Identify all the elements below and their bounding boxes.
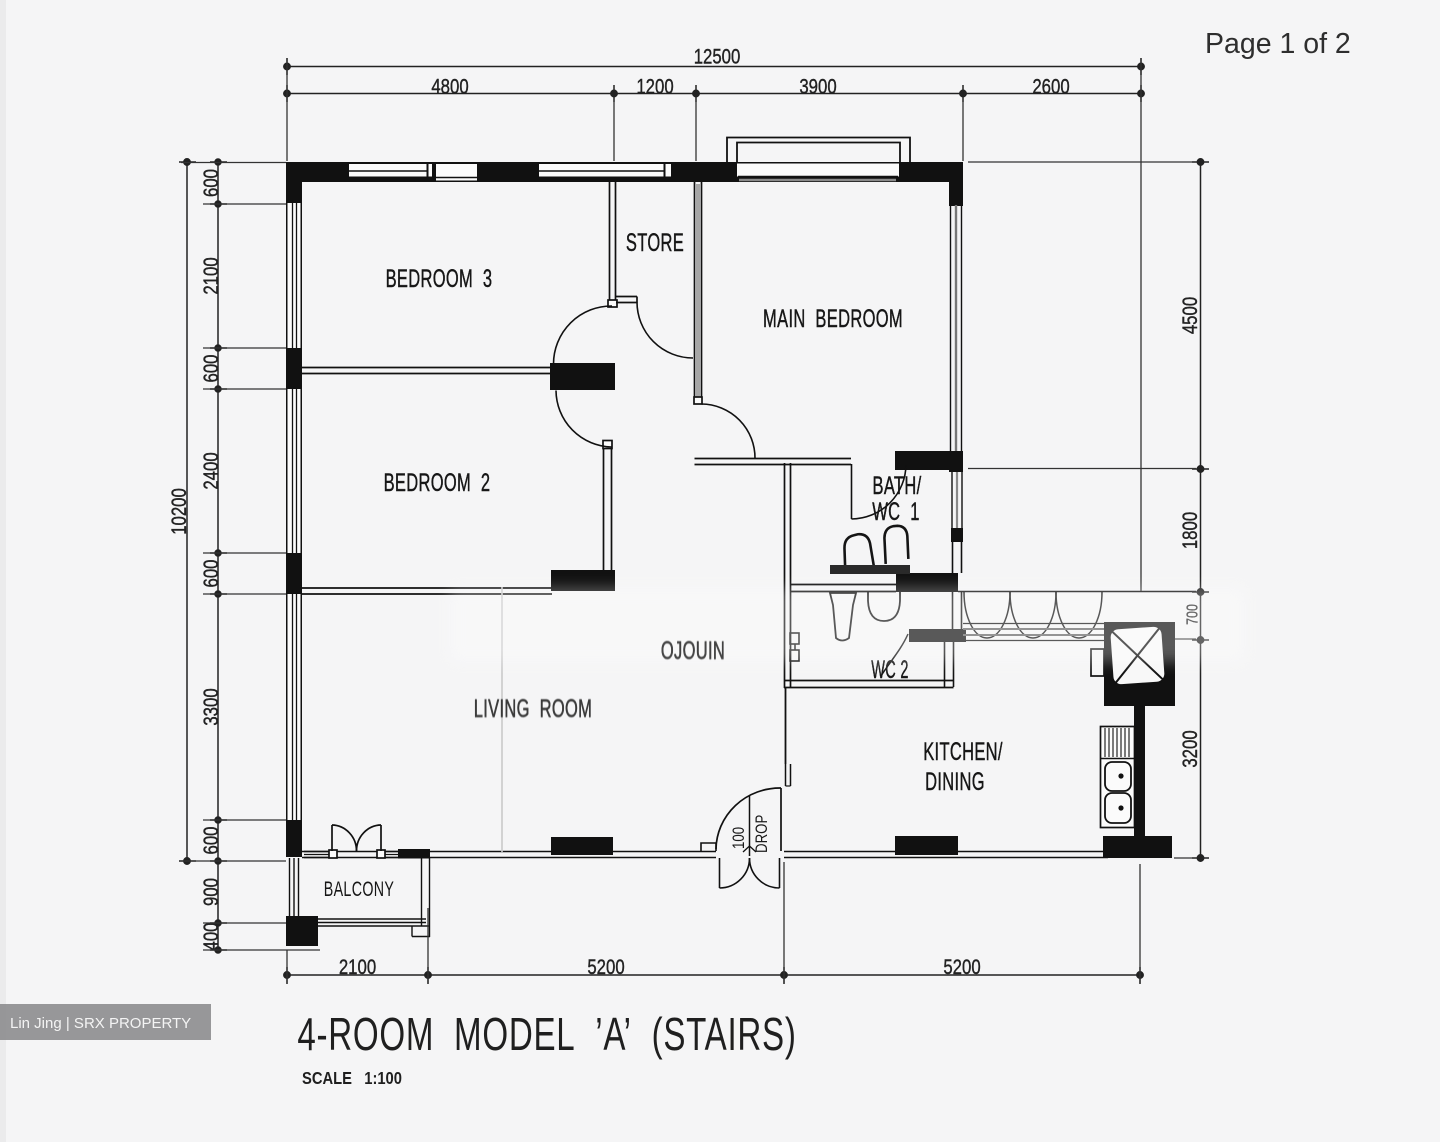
svg-text:2100: 2100 bbox=[200, 257, 223, 294]
svg-text:SCALE 1:100: SCALE 1:100 bbox=[302, 1069, 402, 1089]
svg-text:10200: 10200 bbox=[168, 488, 191, 535]
svg-text:600: 600 bbox=[200, 827, 223, 855]
svg-text:WC 1: WC 1 bbox=[872, 499, 919, 526]
svg-text:400: 400 bbox=[200, 923, 223, 951]
svg-text:2400: 2400 bbox=[200, 452, 223, 489]
svg-text:12500: 12500 bbox=[694, 46, 741, 69]
svg-text:Page 1 of 2: Page 1 of 2 bbox=[1205, 28, 1351, 60]
svg-text:3300: 3300 bbox=[200, 688, 223, 725]
svg-text:600: 600 bbox=[200, 169, 223, 197]
svg-text:2600: 2600 bbox=[1032, 76, 1069, 99]
svg-text:600: 600 bbox=[200, 355, 223, 383]
svg-text:5200: 5200 bbox=[587, 956, 624, 979]
svg-text:KITCHEN/: KITCHEN/ bbox=[923, 739, 1003, 766]
svg-text:4500: 4500 bbox=[1179, 297, 1202, 334]
svg-text:1200: 1200 bbox=[636, 76, 673, 99]
svg-text:Lin Jing | SRX PROPERTY: Lin Jing | SRX PROPERTY bbox=[10, 1015, 191, 1032]
svg-text:5200: 5200 bbox=[943, 956, 980, 979]
svg-text:1800: 1800 bbox=[1179, 512, 1202, 549]
svg-text:4800: 4800 bbox=[431, 76, 468, 99]
svg-text:900: 900 bbox=[200, 878, 223, 906]
svg-text:BALCONY: BALCONY bbox=[324, 877, 395, 900]
svg-text:BATH/: BATH/ bbox=[872, 473, 921, 500]
svg-text:STORE: STORE bbox=[626, 230, 684, 257]
svg-text:3200: 3200 bbox=[1179, 730, 1202, 767]
svg-text:BEDROOM 2: BEDROOM 2 bbox=[384, 470, 491, 497]
svg-text:MAIN BEDROOM: MAIN BEDROOM bbox=[763, 306, 903, 333]
svg-text:LIVING ROOM: LIVING ROOM bbox=[474, 696, 593, 723]
svg-text:4-ROOM MODEL ’A’ (STAIRS): 4-ROOM MODEL ’A’ (STAIRS) bbox=[297, 1010, 796, 1060]
svg-text:DINING: DINING bbox=[925, 769, 985, 796]
svg-text:DROP: DROP bbox=[753, 815, 772, 853]
svg-text:OJOUIN: OJOUIN bbox=[661, 638, 725, 665]
svg-text:100: 100 bbox=[730, 827, 749, 849]
svg-text:BEDROOM 3: BEDROOM 3 bbox=[386, 266, 493, 293]
svg-text:3900: 3900 bbox=[799, 76, 836, 99]
svg-text:600: 600 bbox=[200, 560, 223, 588]
svg-text:2100: 2100 bbox=[339, 956, 376, 979]
